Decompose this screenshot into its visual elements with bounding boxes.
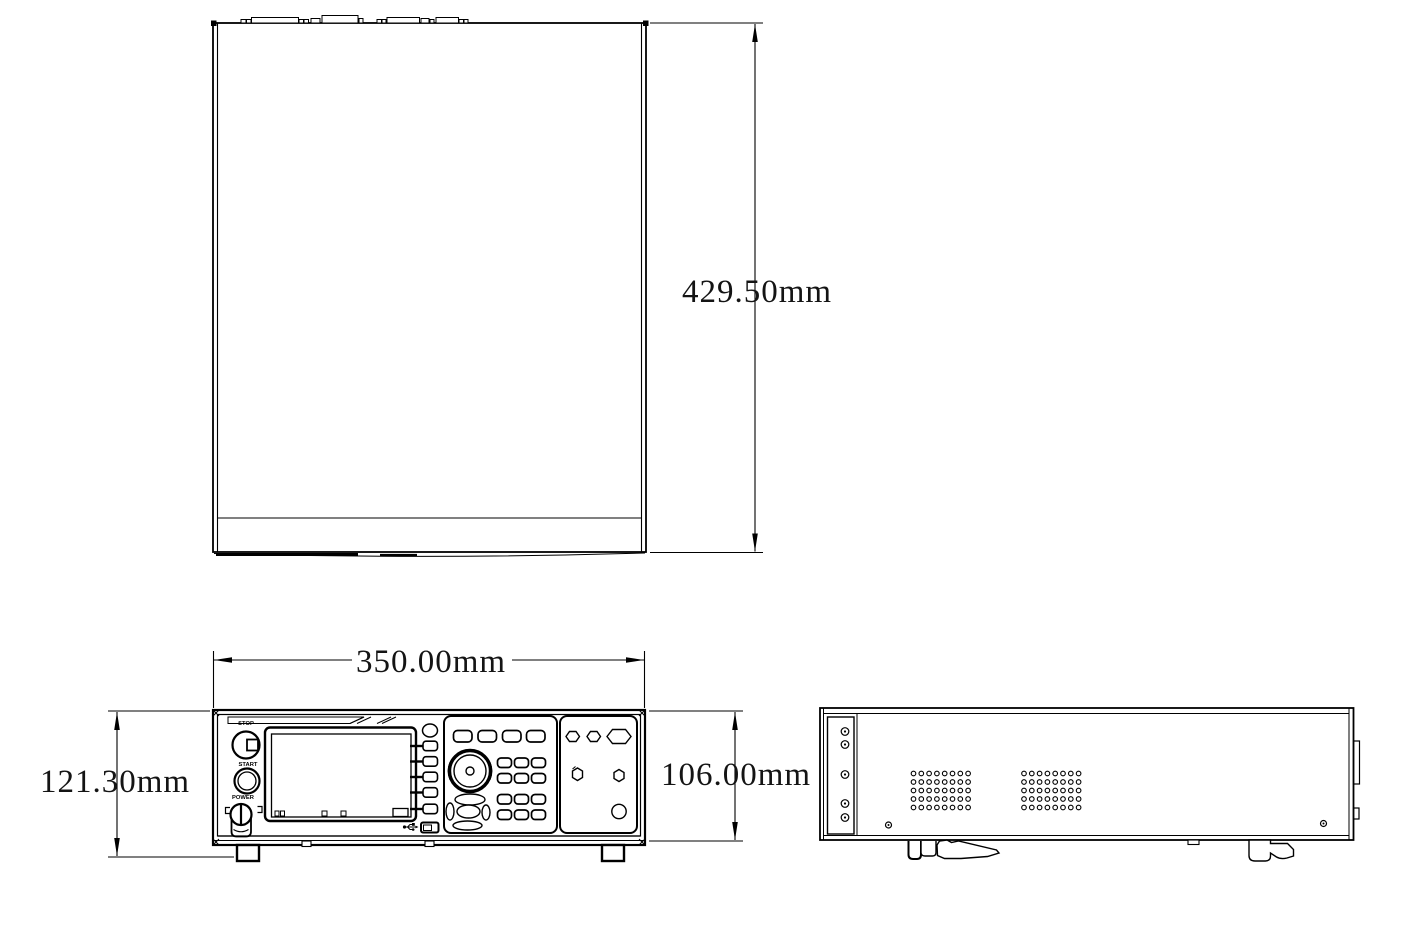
top-edge-knobs xyxy=(241,16,468,24)
start-knob-label: START xyxy=(230,762,265,767)
function-key xyxy=(503,731,522,743)
arrowhead-up-icon xyxy=(732,712,738,730)
terminal-hex xyxy=(573,768,583,781)
keypad-key xyxy=(515,758,529,768)
nav-enter-icon xyxy=(457,805,480,818)
corner-screw-icon xyxy=(643,21,649,27)
keypad-key xyxy=(498,810,512,820)
nav-right-icon xyxy=(482,805,490,820)
arrowhead-up-icon xyxy=(114,712,120,730)
top-view xyxy=(211,16,649,557)
usb-port xyxy=(421,823,439,833)
power-switch xyxy=(226,804,263,837)
function-key xyxy=(478,731,497,743)
stop-knob xyxy=(233,732,260,759)
keypad-key xyxy=(498,774,512,784)
function-key xyxy=(454,731,473,743)
terminal-hex xyxy=(587,732,601,742)
keypad-key xyxy=(515,774,529,784)
terminal-hex-large xyxy=(607,730,631,744)
soft-key-button xyxy=(423,757,438,767)
corner-screw-icon xyxy=(211,21,217,27)
front-view xyxy=(213,710,645,861)
keypad-key xyxy=(532,810,546,820)
engineering-drawing: 429.50mm 350.00mm 121.30mm 106.00mm STOP… xyxy=(0,0,1411,935)
foot xyxy=(602,845,624,861)
side-view xyxy=(820,708,1360,861)
arrowhead-down-icon xyxy=(114,838,120,856)
soft-key-oval xyxy=(423,724,438,737)
dim-width-label: 350.00mm xyxy=(281,644,581,681)
bottom-tab xyxy=(1188,840,1199,845)
bottom-tab xyxy=(302,841,311,847)
soft-key-button xyxy=(423,804,438,814)
dim-body-height-label: 106.00mm xyxy=(586,757,886,794)
soft-key-button xyxy=(423,741,438,751)
nav-down-icon xyxy=(453,821,482,830)
stop-knob-label: STOP xyxy=(228,721,263,726)
rear-handle xyxy=(1354,741,1360,784)
nav-up-icon xyxy=(455,794,485,805)
power-off-mark-icon xyxy=(226,808,231,814)
terminal-hex xyxy=(566,732,580,742)
nav-left-icon xyxy=(446,803,454,820)
soft-key-button xyxy=(423,772,438,782)
keypad-key xyxy=(515,795,529,805)
tilt-stand xyxy=(937,840,999,859)
keypad-key xyxy=(498,795,512,805)
arrowhead-down-icon xyxy=(752,534,758,552)
usb-icon xyxy=(403,823,419,831)
side-front-foot xyxy=(909,840,1000,859)
terminal-round xyxy=(612,804,626,818)
power-on-mark-icon xyxy=(258,807,263,813)
foot xyxy=(237,845,259,861)
keypad-key xyxy=(532,758,546,768)
function-key xyxy=(527,731,546,743)
arrowhead-up-icon xyxy=(752,24,758,42)
power-switch-label: POWER xyxy=(226,795,261,800)
arrowhead-left-icon xyxy=(214,657,232,662)
arrowhead-right-icon xyxy=(626,657,644,662)
rotary-knob xyxy=(449,751,492,792)
dim-depth-label: 429.50mm xyxy=(607,274,907,311)
display-screen xyxy=(265,728,416,822)
bottom-tab xyxy=(425,841,434,847)
keypad-key xyxy=(532,795,546,805)
vent-grid-right xyxy=(1022,771,1081,810)
arrowhead-down-icon xyxy=(732,822,738,840)
keypad-key xyxy=(532,774,546,784)
soft-key-button xyxy=(423,788,438,798)
keypad-key xyxy=(498,758,512,768)
vent-grid-left xyxy=(911,771,970,810)
keypad-key xyxy=(515,810,529,820)
center-control-section xyxy=(444,716,557,833)
side-rear-foot xyxy=(1249,840,1294,861)
